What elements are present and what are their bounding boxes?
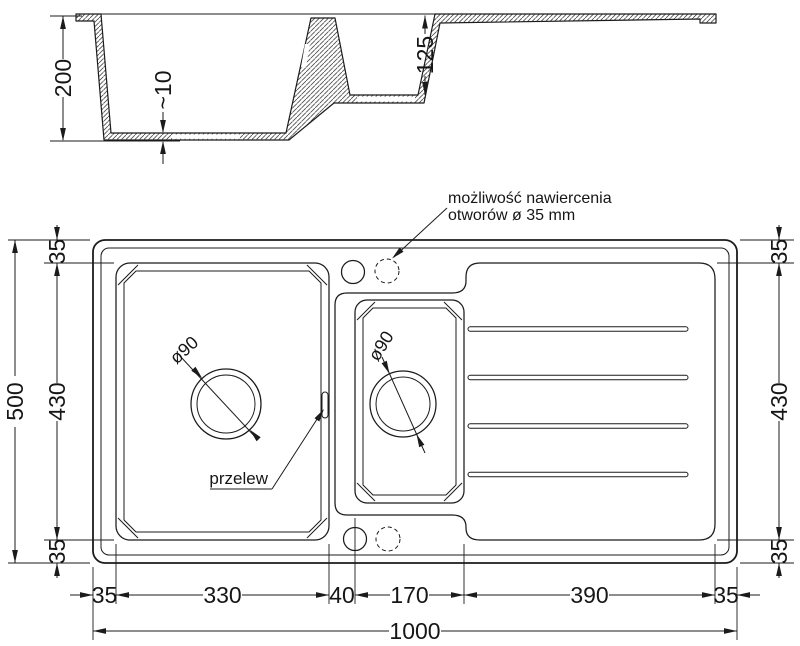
overflow-callout: przelew bbox=[209, 409, 324, 489]
dim-bottom-1: 330 bbox=[203, 582, 241, 608]
groove bbox=[468, 424, 688, 428]
small-bowl-collar-and-drainer bbox=[335, 263, 715, 540]
overflow-label: przelew bbox=[209, 469, 268, 488]
dim-bottom-3: 170 bbox=[390, 582, 428, 608]
dim-left-top: 35 bbox=[44, 239, 70, 265]
optional-hole-top-dashed bbox=[375, 259, 399, 283]
dim-bottom-5: 35 bbox=[713, 582, 739, 608]
small-bowl bbox=[355, 300, 464, 503]
dim-bottom-4: 390 bbox=[570, 582, 608, 608]
dim-left-middle: 430 bbox=[44, 382, 70, 420]
dim-floor-thickness: ~10 bbox=[150, 70, 176, 164]
dim-right-middle: 430 bbox=[766, 382, 792, 420]
small-bowl-drain-gap bbox=[357, 97, 415, 102]
main-bowl-drain-gap bbox=[172, 134, 240, 138]
dim-depth-main-value: 200 bbox=[50, 59, 76, 97]
section-view: 200 ~10 125 bbox=[50, 14, 716, 164]
annotation-line2: otworów ø 35 mm bbox=[448, 207, 575, 224]
sink-technical-drawing: 200 ~10 125 bbox=[0, 0, 800, 646]
groove bbox=[468, 375, 688, 379]
groove bbox=[468, 472, 688, 476]
sink-inner-rim bbox=[101, 248, 729, 555]
dim-right-bottom: 35 bbox=[766, 539, 792, 565]
tap-hole-top bbox=[342, 261, 365, 284]
drain-small-label: ø90 bbox=[364, 328, 397, 365]
drain-small: ø90 bbox=[364, 328, 436, 453]
dim-depth-small-value: 125 bbox=[412, 36, 438, 74]
drainer-grooves bbox=[468, 327, 688, 477]
dim-overall-height: 500 bbox=[2, 382, 28, 420]
drawing-canvas: 200 ~10 125 bbox=[0, 0, 800, 646]
dim-floor-thickness-value: ~10 bbox=[150, 70, 176, 109]
dim-bottom-2: 40 bbox=[329, 582, 355, 608]
dims-bottom: 35 330 40 170 390 35 1000 bbox=[70, 518, 760, 644]
optional-hole-bottom-dashed bbox=[376, 527, 400, 551]
groove bbox=[468, 327, 688, 331]
dim-overall-width: 1000 bbox=[389, 618, 440, 644]
drain-main-label: ø90 bbox=[166, 332, 202, 368]
drain-main: ø90 bbox=[166, 332, 261, 441]
dims-left: 500 35 430 35 bbox=[2, 225, 114, 578]
overflow-slot bbox=[322, 392, 328, 418]
dim-left-bottom: 35 bbox=[44, 539, 70, 565]
dim-bottom-0: 35 bbox=[92, 582, 118, 608]
dim-right-top: 35 bbox=[766, 239, 792, 265]
plan-view: ø90 ø90 przelew możliwość nawiercenia ot… bbox=[2, 190, 794, 644]
annotation-line1: możliwość nawiercenia bbox=[448, 190, 612, 207]
